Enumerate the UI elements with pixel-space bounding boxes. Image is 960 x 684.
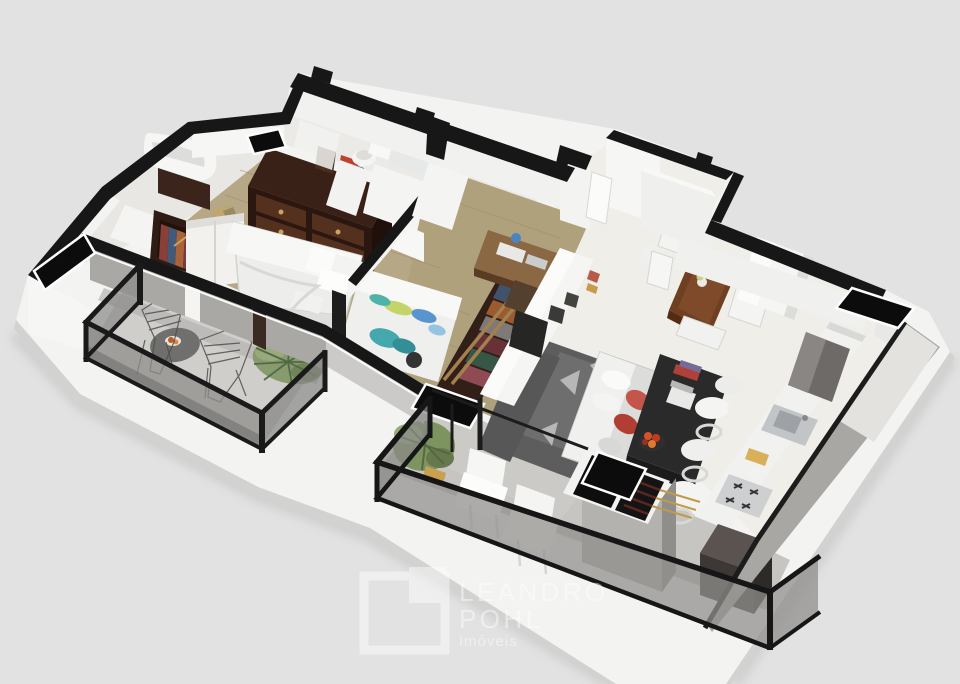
svg-text:Imóveis: Imóveis [459,633,518,650]
svg-text:LEANDRO: LEANDRO [459,577,609,607]
svg-text:POHL: POHL [459,604,543,634]
